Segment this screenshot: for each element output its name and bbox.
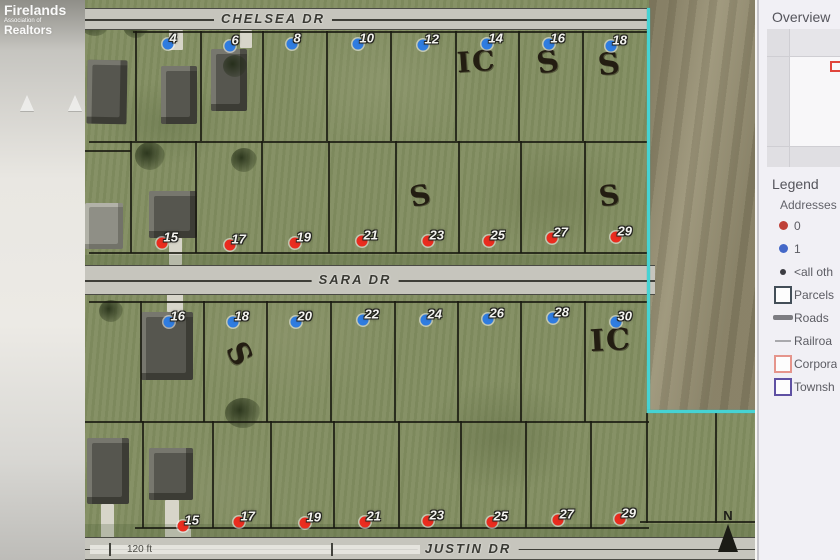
- watermark-line3: Realtors: [4, 24, 66, 37]
- map-canvas[interactable]: CHELSEA DR SARA DR JUSTIN DR ICSSSSSIC: [85, 0, 755, 560]
- lot-marker[interactable]: 16: [544, 39, 555, 50]
- lot-number: 19: [307, 510, 321, 525]
- lot-number: 12: [425, 32, 439, 47]
- legend-item-label: 0: [794, 219, 801, 233]
- lot-marker[interactable]: 30: [611, 317, 622, 328]
- lot-marker[interactable]: 17: [225, 240, 236, 251]
- lot-number: 25: [491, 228, 505, 243]
- minimap-gridline: [767, 146, 840, 147]
- legend-swatch-icon: [774, 355, 792, 373]
- legend-item: Parcels: [759, 283, 840, 306]
- lot-number: 22: [365, 307, 379, 322]
- handwritten-mark: S: [596, 49, 623, 81]
- lot-number: 14: [489, 31, 503, 46]
- lot-marker[interactable]: 21: [360, 517, 371, 528]
- legend-swatch-column: [772, 269, 794, 275]
- legend-group-addresses: Addresses: [780, 198, 840, 212]
- minimap-tile: [767, 146, 840, 167]
- photo-left-border: [0, 0, 85, 560]
- lot-number: 8: [294, 31, 301, 46]
- watermark: Firelands Association of Realtors: [4, 3, 66, 37]
- legend-list: 0 1 <all oth Parcels: [759, 214, 840, 398]
- handwritten-mark: IC: [589, 325, 632, 357]
- legend-swatch-column: [772, 378, 794, 396]
- lot-number: 15: [185, 513, 199, 528]
- legend-swatch-icon: [780, 269, 786, 275]
- legend-swatch-column: [772, 340, 794, 342]
- lot-marker[interactable]: 18: [606, 41, 617, 52]
- lot-number: 23: [430, 508, 444, 523]
- legend-swatch-column: [772, 355, 794, 373]
- lot-marker[interactable]: 12: [418, 40, 429, 51]
- legend-item-label: Roads: [794, 311, 829, 325]
- lot-number: 15: [164, 230, 178, 245]
- legend-item: Roads: [759, 306, 840, 329]
- handwritten-mark: S: [597, 181, 623, 212]
- lot-marker[interactable]: 25: [484, 236, 495, 247]
- legend-item-label: <all oth: [794, 265, 833, 279]
- lot-marker[interactable]: 26: [483, 314, 494, 325]
- side-panel: Overview Legend Addresses 0: [757, 0, 840, 560]
- legend-swatch-icon: [774, 378, 792, 396]
- scale-label: 120 ft: [127, 544, 152, 555]
- lot-row-justin-north: 15 17 19 21 23 25 27: [85, 0, 755, 560]
- lot-number: 6: [232, 33, 239, 48]
- legend-item: Townsh: [759, 375, 840, 398]
- watermark-icons: [20, 95, 82, 111]
- lot-number: 21: [367, 509, 381, 524]
- lot-marker[interactable]: 21: [357, 236, 368, 247]
- scale-tick: [331, 543, 333, 556]
- lot-number: 25: [494, 509, 508, 524]
- handwritten-mark: IC: [456, 47, 497, 78]
- legend-swatch-icon: [779, 221, 788, 230]
- legend-swatch-column: [772, 286, 794, 304]
- lot-marker[interactable]: 20: [291, 317, 302, 328]
- legend-swatch-column: [772, 221, 794, 230]
- lot-marker[interactable]: 19: [300, 518, 311, 529]
- lot-marker[interactable]: 29: [615, 514, 626, 525]
- lot-marker[interactable]: 15: [178, 521, 189, 532]
- lot-number: 26: [490, 306, 504, 321]
- lot-number: 29: [618, 224, 632, 239]
- lot-number: 18: [235, 309, 249, 324]
- lot-number: 16: [171, 309, 185, 324]
- lot-marker[interactable]: 14: [482, 39, 493, 50]
- lot-marker[interactable]: 22: [358, 315, 369, 326]
- lot-marker[interactable]: 17: [234, 517, 245, 528]
- lot-marker[interactable]: 23: [423, 236, 434, 247]
- minimap-gridline: [767, 56, 840, 57]
- lot-marker[interactable]: 4: [163, 39, 174, 50]
- lot-number: 27: [560, 507, 574, 522]
- extent-indicator[interactable]: [830, 61, 840, 72]
- legend-item-label: Townsh: [794, 380, 835, 394]
- lot-marker[interactable]: 24: [421, 315, 432, 326]
- lot-number: 10: [360, 31, 374, 46]
- lot-marker[interactable]: 10: [353, 39, 364, 50]
- north-arrow-triangle: [718, 524, 738, 552]
- legend-item: <all oth: [759, 260, 840, 283]
- legend-item: Railroa: [759, 329, 840, 352]
- legend-title: Legend: [772, 176, 840, 192]
- scale-tick: [109, 543, 111, 556]
- lot-number: 20: [298, 309, 312, 324]
- legend-swatch-icon: [773, 315, 793, 320]
- lot-number: 29: [622, 506, 636, 521]
- legend-swatch-icon: [774, 286, 792, 304]
- legend-swatch-column: [772, 244, 794, 253]
- screenshot-stage: Firelands Association of Realtors: [0, 0, 840, 560]
- lot-marker[interactable]: 28: [548, 313, 559, 324]
- lot-marker[interactable]: 18: [228, 317, 239, 328]
- legend-item-label: Railroa: [794, 334, 832, 348]
- north-arrow: N: [718, 508, 738, 552]
- lot-marker[interactable]: 8: [287, 39, 298, 50]
- north-label: N: [718, 508, 738, 523]
- lot-number: 21: [364, 228, 378, 243]
- overview-minimap[interactable]: [767, 29, 840, 167]
- legend-item: 1: [759, 237, 840, 260]
- lot-number: 27: [554, 225, 568, 240]
- legend-swatch-column: [772, 315, 794, 320]
- lot-marker[interactable]: 19: [290, 238, 301, 249]
- lot-number: 19: [297, 230, 311, 245]
- legend-item-label: 1: [794, 242, 801, 256]
- legend-item-label: Corpora: [794, 357, 837, 371]
- lot-marker[interactable]: 27: [553, 515, 564, 526]
- legend-swatch-icon: [775, 340, 791, 342]
- lot-marker[interactable]: 25: [487, 517, 498, 528]
- lot-marker[interactable]: 15: [157, 238, 168, 249]
- lot-number: 17: [232, 232, 246, 247]
- sailboat-icon: [20, 95, 34, 111]
- overview-title: Overview: [772, 9, 840, 25]
- lot-number: 28: [555, 305, 569, 320]
- legend-item: 0: [759, 214, 840, 237]
- lot-number: 17: [241, 509, 255, 524]
- lot-number: 16: [551, 31, 565, 46]
- legend-item: Corpora: [759, 352, 840, 375]
- handwritten-mark: S: [535, 46, 564, 80]
- lot-marker[interactable]: 29: [611, 232, 622, 243]
- lot-number: 23: [430, 228, 444, 243]
- lot-marker[interactable]: 6: [225, 41, 236, 52]
- lot-number: 24: [428, 307, 442, 322]
- lot-marker[interactable]: 23: [423, 516, 434, 527]
- lot-marker[interactable]: 27: [547, 233, 558, 244]
- lot-number: 4: [170, 31, 177, 46]
- watermark-line1: Firelands: [4, 3, 66, 18]
- legend-item-label: Parcels: [794, 288, 834, 302]
- lot-number: 30: [618, 309, 632, 324]
- lot-number: 18: [613, 33, 627, 48]
- sailboat-icon: [68, 95, 82, 111]
- lot-marker[interactable]: 16: [164, 317, 175, 328]
- legend-swatch-icon: [779, 244, 788, 253]
